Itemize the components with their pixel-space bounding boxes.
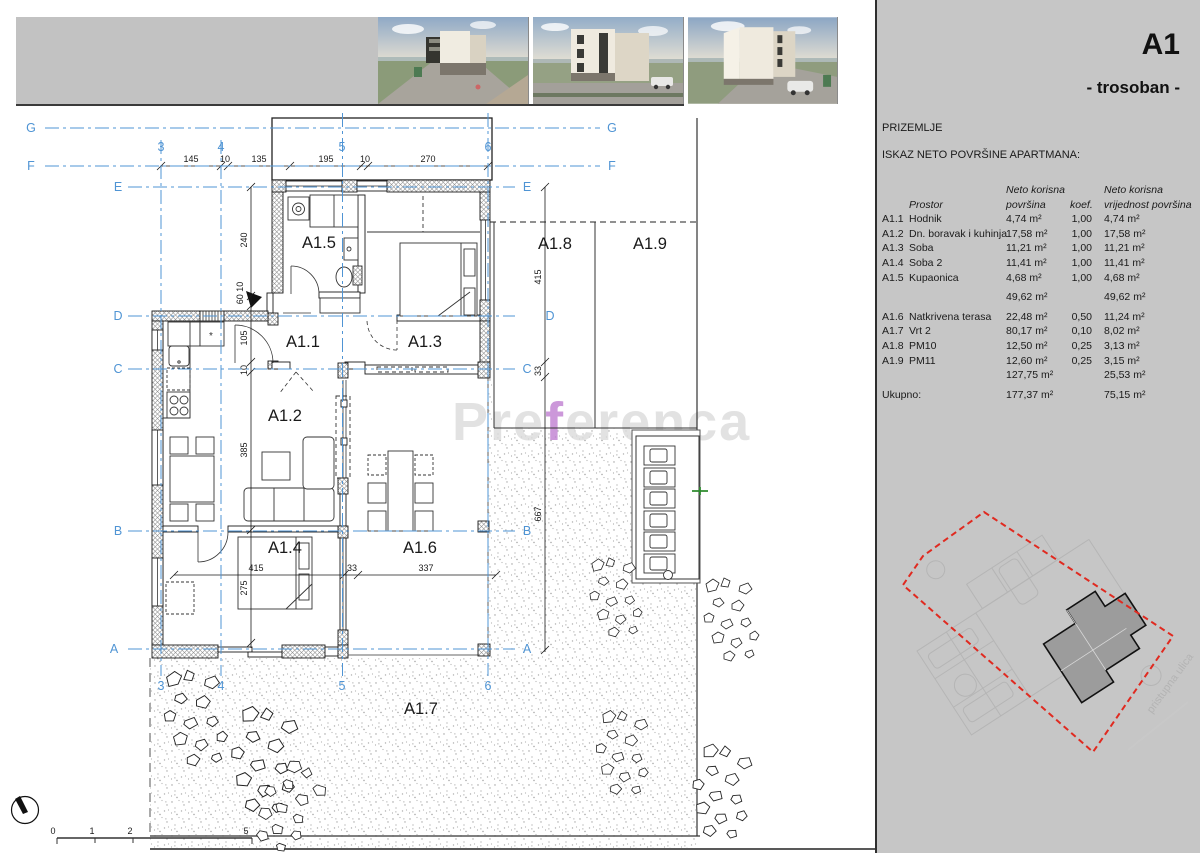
table-row: 49,62 m²49,62 m² bbox=[882, 290, 1194, 305]
render-thumbnail-2 bbox=[533, 17, 684, 104]
area-table-rows: A1.1Hodnik4,74 m²1,004,74 m²A1.2Dn. bora… bbox=[882, 212, 1194, 402]
svg-text:4: 4 bbox=[218, 140, 225, 154]
table-row: A1.6Natkrivena terasa22,48 m²0,5011,24 m… bbox=[882, 310, 1194, 325]
info-panel: A1 - trosoban - PRIZEMLJE ISKAZ NETO POV… bbox=[877, 0, 1200, 853]
render-thumbnail-1 bbox=[378, 17, 529, 104]
svg-text:337: 337 bbox=[418, 563, 433, 573]
table-header-row1: Neto korisna Neto korisna bbox=[882, 183, 1194, 198]
drawing-sheet: Preferenca bbox=[0, 0, 1200, 853]
unit-title: A1 bbox=[1142, 28, 1180, 62]
svg-text:415: 415 bbox=[248, 563, 263, 573]
table-row: A1.8PM1012,50 m²0,253,13 m² bbox=[882, 339, 1194, 354]
watermark: Preferenca bbox=[452, 392, 751, 452]
svg-text:667: 667 bbox=[533, 506, 543, 521]
svg-text:A: A bbox=[523, 642, 532, 656]
svg-text:G: G bbox=[26, 121, 36, 135]
table-row: A1.1Hodnik4,74 m²1,004,74 m² bbox=[882, 212, 1194, 227]
svg-text:135: 135 bbox=[251, 154, 266, 164]
render-thumbnail-3 bbox=[688, 17, 838, 104]
svg-text:270: 270 bbox=[420, 154, 435, 164]
svg-text:6: 6 bbox=[485, 679, 492, 693]
svg-text:60 10: 60 10 bbox=[235, 282, 245, 305]
svg-text:E: E bbox=[523, 180, 531, 194]
svg-text:4: 4 bbox=[218, 679, 225, 693]
svg-text:0: 0 bbox=[50, 826, 55, 836]
area-table: Neto korisna Neto korisna Prostor površi… bbox=[882, 183, 1194, 402]
svg-text:1: 1 bbox=[89, 826, 94, 836]
svg-text:33: 33 bbox=[347, 563, 357, 573]
room-label-a1-7: A1.7 bbox=[404, 700, 438, 718]
svg-text:10: 10 bbox=[239, 365, 249, 375]
svg-text:C: C bbox=[522, 362, 531, 376]
table-header-row2: Prostor površina koef. vrijednost površi… bbox=[882, 198, 1194, 213]
room-label-a1-5: A1.5 bbox=[302, 234, 336, 252]
svg-text:240: 240 bbox=[239, 232, 249, 247]
header-band-shadow bbox=[16, 104, 684, 106]
room-label-a1-6: A1.6 bbox=[403, 539, 437, 557]
table-row: 127,75 m²25,53 m² bbox=[882, 368, 1194, 383]
svg-text:105: 105 bbox=[239, 330, 249, 345]
svg-text:415: 415 bbox=[533, 269, 543, 284]
table-row: A1.5Kupaonica4,68 m²1,004,68 m² bbox=[882, 271, 1194, 286]
svg-text:275: 275 bbox=[239, 580, 249, 595]
svg-text:33: 33 bbox=[533, 366, 543, 376]
floor-plan: Preferenca bbox=[0, 0, 877, 853]
north-compass-icon bbox=[12, 796, 39, 824]
svg-text:G: G bbox=[607, 121, 617, 135]
svg-text:3: 3 bbox=[158, 140, 165, 154]
svg-text:3: 3 bbox=[158, 679, 165, 693]
svg-text:5: 5 bbox=[339, 140, 346, 154]
svg-text:B: B bbox=[523, 524, 531, 538]
svg-text:C: C bbox=[113, 362, 122, 376]
room-label-a1-8: A1.8 bbox=[538, 235, 572, 253]
table-row: A1.2Dn. boravak i kuhinja17,58 m²1,0017,… bbox=[882, 227, 1194, 242]
svg-text:10: 10 bbox=[360, 154, 370, 164]
room-label-a1-9: A1.9 bbox=[633, 235, 667, 253]
room-label-a1-2: A1.2 bbox=[268, 407, 302, 425]
svg-text:F: F bbox=[27, 159, 35, 173]
svg-text:A: A bbox=[110, 642, 119, 656]
table-row: A1.4Soba 211,41 m²1,0011,41 m² bbox=[882, 256, 1194, 271]
room-label-a1-3: A1.3 bbox=[408, 333, 442, 351]
svg-text:6: 6 bbox=[485, 140, 492, 154]
site-plan: pristupna ulica bbox=[877, 470, 1200, 800]
room-label-a1-1: A1.1 bbox=[286, 333, 320, 351]
highlighted-unit bbox=[1035, 578, 1162, 702]
table-row: Ukupno:177,37 m²75,15 m² bbox=[882, 388, 1194, 403]
table-row: A1.7Vrt 280,17 m²0,108,02 m² bbox=[882, 324, 1194, 339]
unit-subtitle: - trosoban - bbox=[1087, 78, 1181, 98]
svg-text:2: 2 bbox=[127, 826, 132, 836]
table-row: A1.3Soba11,21 m²1,0011,21 m² bbox=[882, 241, 1194, 256]
svg-text:D: D bbox=[113, 309, 122, 323]
svg-text:F: F bbox=[608, 159, 616, 173]
table-row: A1.9PM1112,60 m²0,253,15 m² bbox=[882, 354, 1194, 369]
svg-text:145: 145 bbox=[183, 154, 198, 164]
svg-text:385: 385 bbox=[239, 442, 249, 457]
svg-text:E: E bbox=[114, 180, 122, 194]
svg-text:5: 5 bbox=[243, 826, 248, 836]
table-title: ISKAZ NETO POVRŠINE APARTMANA: bbox=[882, 149, 1080, 161]
floor-label: PRIZEMLJE bbox=[882, 122, 943, 134]
svg-text:5: 5 bbox=[339, 679, 346, 693]
svg-text:195: 195 bbox=[318, 154, 333, 164]
header-band bbox=[16, 17, 378, 104]
svg-text:D: D bbox=[545, 309, 554, 323]
svg-text:B: B bbox=[114, 524, 122, 538]
room-label-a1-4: A1.4 bbox=[268, 539, 302, 557]
street-label: pristupna ulica bbox=[1145, 651, 1197, 716]
kitchen-symbol: * bbox=[209, 331, 213, 342]
panel-separator bbox=[875, 0, 877, 853]
